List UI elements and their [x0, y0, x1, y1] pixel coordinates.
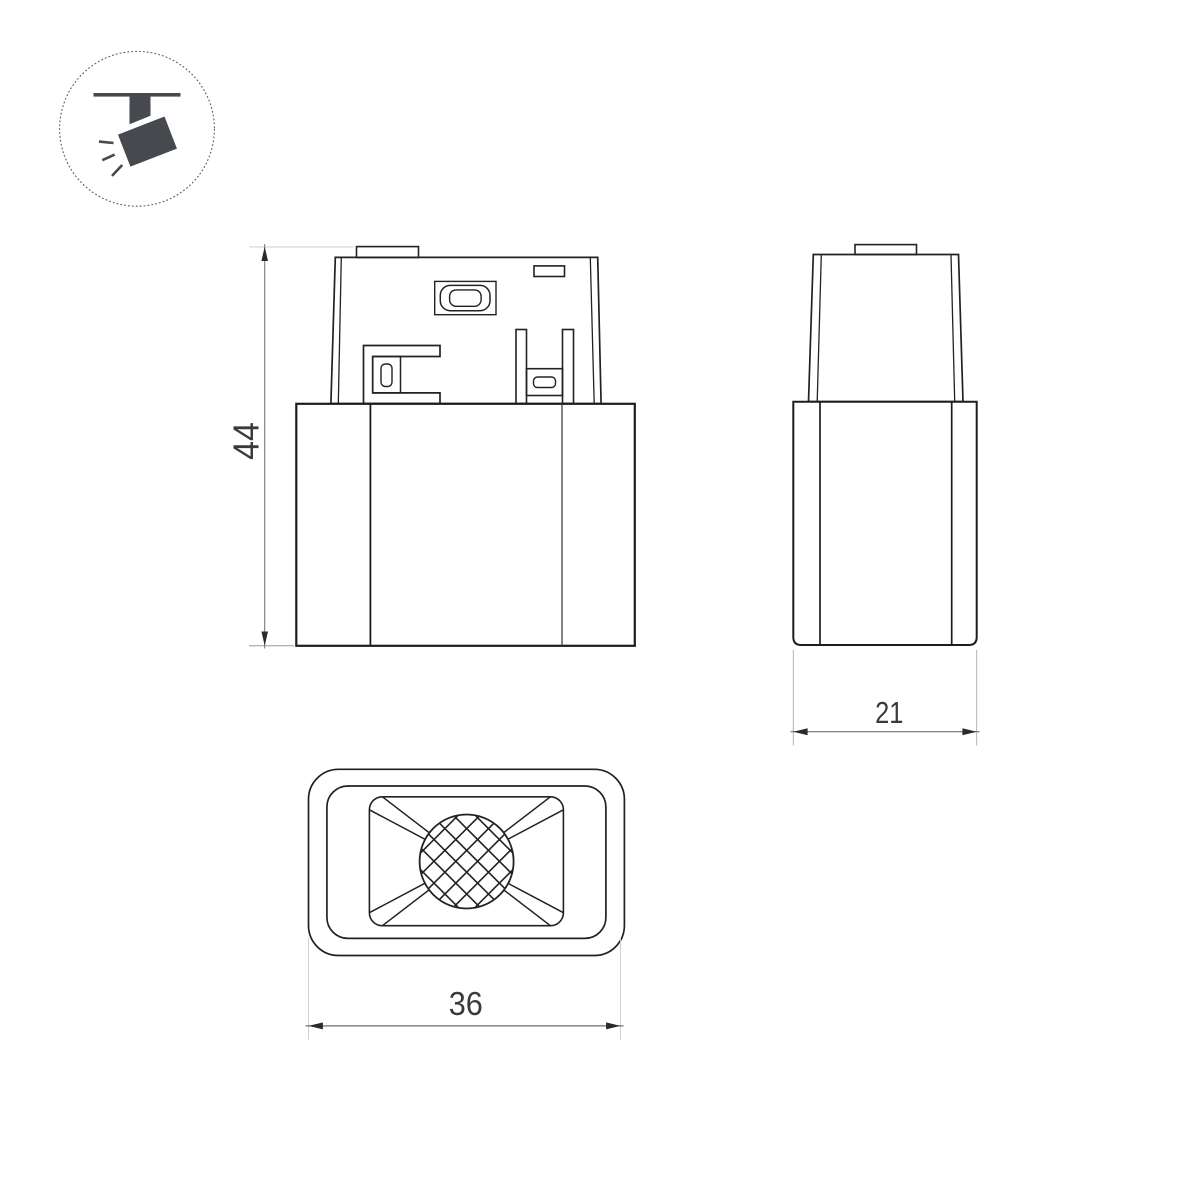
svg-text:44: 44: [226, 422, 266, 460]
svg-text:21: 21: [875, 696, 903, 731]
svg-text:36: 36: [449, 985, 483, 1022]
